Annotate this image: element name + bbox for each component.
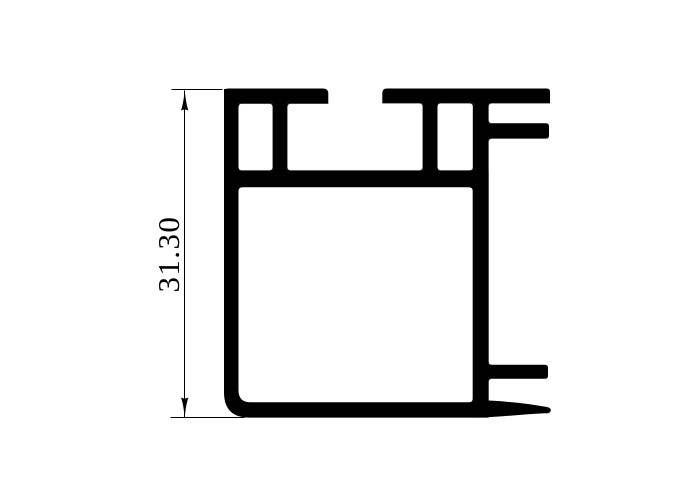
svg-text:31.30: 31.30 — [151, 216, 186, 293]
